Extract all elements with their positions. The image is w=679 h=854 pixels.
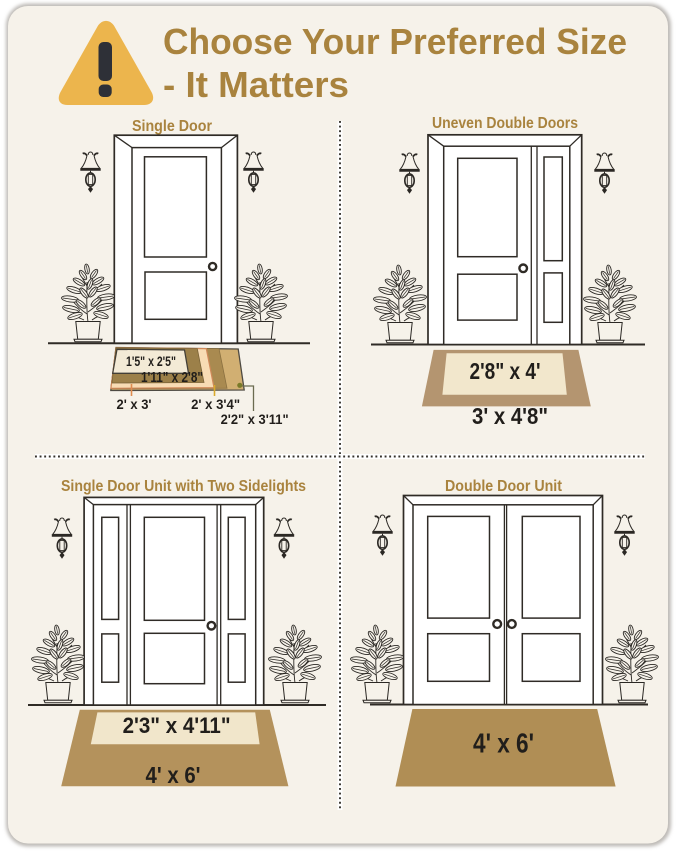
svg-text:4' x 6': 4' x 6' — [146, 762, 201, 788]
svg-text:Single Door: Single Door — [132, 118, 212, 135]
svg-text:1'5" x 2'5": 1'5" x 2'5" — [126, 354, 176, 369]
svg-text:Double Door Unit: Double Door Unit — [445, 478, 562, 495]
svg-text:2' x 3'4": 2' x 3'4" — [191, 396, 240, 412]
svg-text:1'11" x 2'8": 1'11" x 2'8" — [141, 370, 203, 386]
svg-text:4' x 6': 4' x 6' — [473, 728, 534, 759]
svg-text:2'8" x 4': 2'8" x 4' — [470, 358, 541, 384]
svg-text:2'3" x 4'11": 2'3" x 4'11" — [123, 713, 231, 738]
svg-text:2'2" x 3'11": 2'2" x 3'11" — [221, 411, 289, 427]
svg-text:2' x 3': 2' x 3' — [117, 396, 152, 412]
svg-text:Single Door Unit with Two Side: Single Door Unit with Two Sidelights — [61, 478, 306, 495]
svg-text:- It Matters: - It Matters — [163, 64, 349, 105]
svg-text:3' x 4'8": 3' x 4'8" — [472, 403, 548, 429]
svg-text:Uneven Double Doors: Uneven Double Doors — [432, 115, 578, 132]
svg-text:Choose Your Preferred Size: Choose Your Preferred Size — [163, 21, 627, 62]
